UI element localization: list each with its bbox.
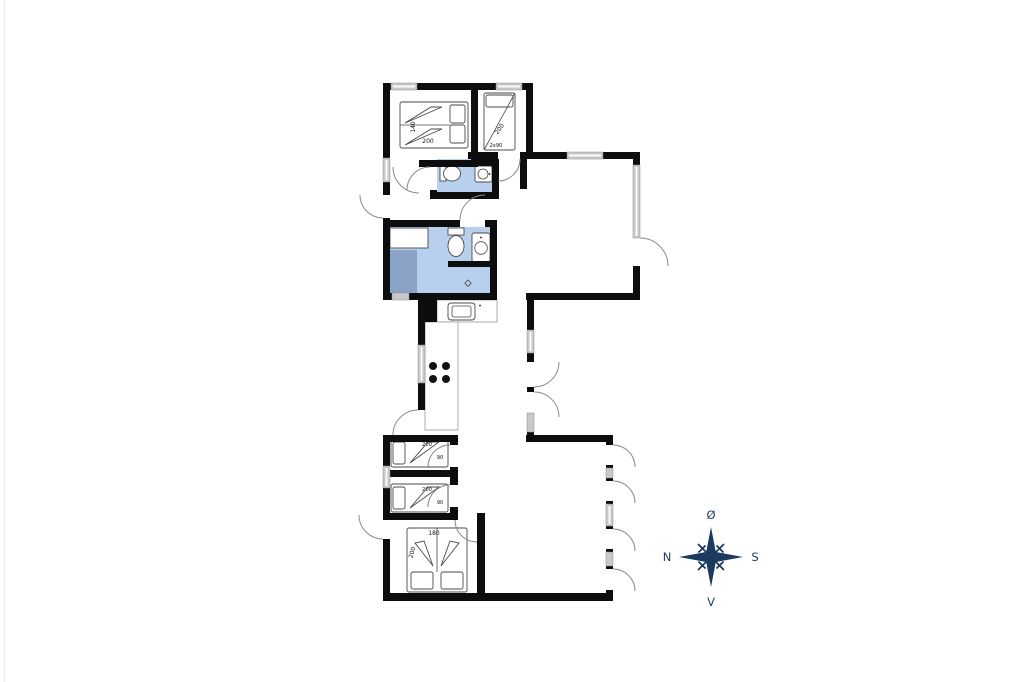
- bed-south-double: [407, 528, 467, 592]
- door-arc: [393, 167, 419, 193]
- entrance-door-arc: [360, 195, 383, 218]
- pillow: [486, 95, 513, 107]
- compass-rose: Ø S V N: [663, 508, 759, 609]
- faucet: [480, 237, 482, 239]
- window: [392, 293, 409, 300]
- compass-letter-east: Ø: [706, 508, 715, 522]
- toilet-bowl: [444, 166, 461, 181]
- walls-dining-room: [526, 152, 640, 300]
- window-pane: [498, 86, 520, 88]
- exterior-door-arc: [359, 515, 383, 539]
- window-pane: [393, 86, 415, 88]
- window-pane: [569, 155, 601, 157]
- window-pane: [530, 332, 532, 351]
- window-pane: [386, 160, 388, 180]
- pillow: [393, 442, 405, 464]
- terrace-door-arc: [613, 445, 635, 467]
- bed-width-label: 90: [437, 455, 444, 461]
- patio-door-arc: [534, 392, 559, 417]
- pillow: [450, 105, 465, 123]
- patio-door-arc: [534, 362, 559, 387]
- compass-center: [705, 551, 717, 563]
- pillow: [450, 125, 465, 143]
- window: [606, 468, 613, 478]
- window: [606, 552, 613, 566]
- terrace-door-arc: [613, 481, 635, 503]
- toilet-tank: [448, 228, 464, 235]
- bed-length-label: 200: [422, 138, 434, 145]
- pillow: [411, 572, 433, 589]
- bed-width-label: 2x90: [490, 143, 503, 149]
- window-pane: [636, 167, 638, 236]
- bed-width-label: 140: [410, 121, 417, 133]
- window-pane: [386, 468, 388, 486]
- door-arc: [407, 167, 430, 190]
- patio-door-arc: [640, 238, 668, 266]
- floor-plan: 140 200 200 2x90 200 90 200 90 180 200: [0, 0, 1024, 682]
- main-bathroom: [390, 227, 490, 293]
- bed-width-label: 90: [437, 500, 444, 506]
- window-pane: [609, 506, 611, 524]
- burner: [442, 362, 450, 370]
- back-door-arc: [393, 410, 418, 435]
- window-pane: [421, 347, 423, 381]
- burner: [442, 375, 450, 383]
- floorplan-page: 140 200 200 2x90 200 90 200 90 180 200: [0, 0, 1024, 682]
- compass-letter-north: N: [663, 550, 672, 564]
- bed-middle-1: [391, 439, 448, 467]
- kitchen-counter-side: [425, 322, 458, 430]
- compass-letter-south: S: [751, 550, 758, 564]
- sink: [475, 166, 492, 182]
- door-arc: [498, 159, 520, 181]
- bed-length-label: 200: [422, 487, 432, 493]
- bathroom-cabinet: [390, 228, 428, 248]
- window: [527, 413, 534, 432]
- terrace-door-arc: [613, 529, 635, 551]
- terrace-door-arc: [613, 569, 635, 591]
- bed-length-label: 200: [422, 442, 432, 448]
- sink: [472, 233, 490, 262]
- faucet: [479, 305, 481, 307]
- toilet: [440, 166, 461, 181]
- toilet-bowl: [448, 236, 464, 257]
- compass-letter-west: V: [707, 595, 715, 609]
- faucet: [489, 173, 491, 175]
- pillow: [393, 487, 405, 509]
- bed-width-label: 180: [428, 530, 440, 537]
- bed-bunk: [484, 93, 515, 150]
- burner: [429, 375, 437, 383]
- toilet: [448, 228, 464, 257]
- burner: [429, 362, 437, 370]
- shower-floor: [390, 250, 417, 293]
- pillow: [441, 572, 463, 589]
